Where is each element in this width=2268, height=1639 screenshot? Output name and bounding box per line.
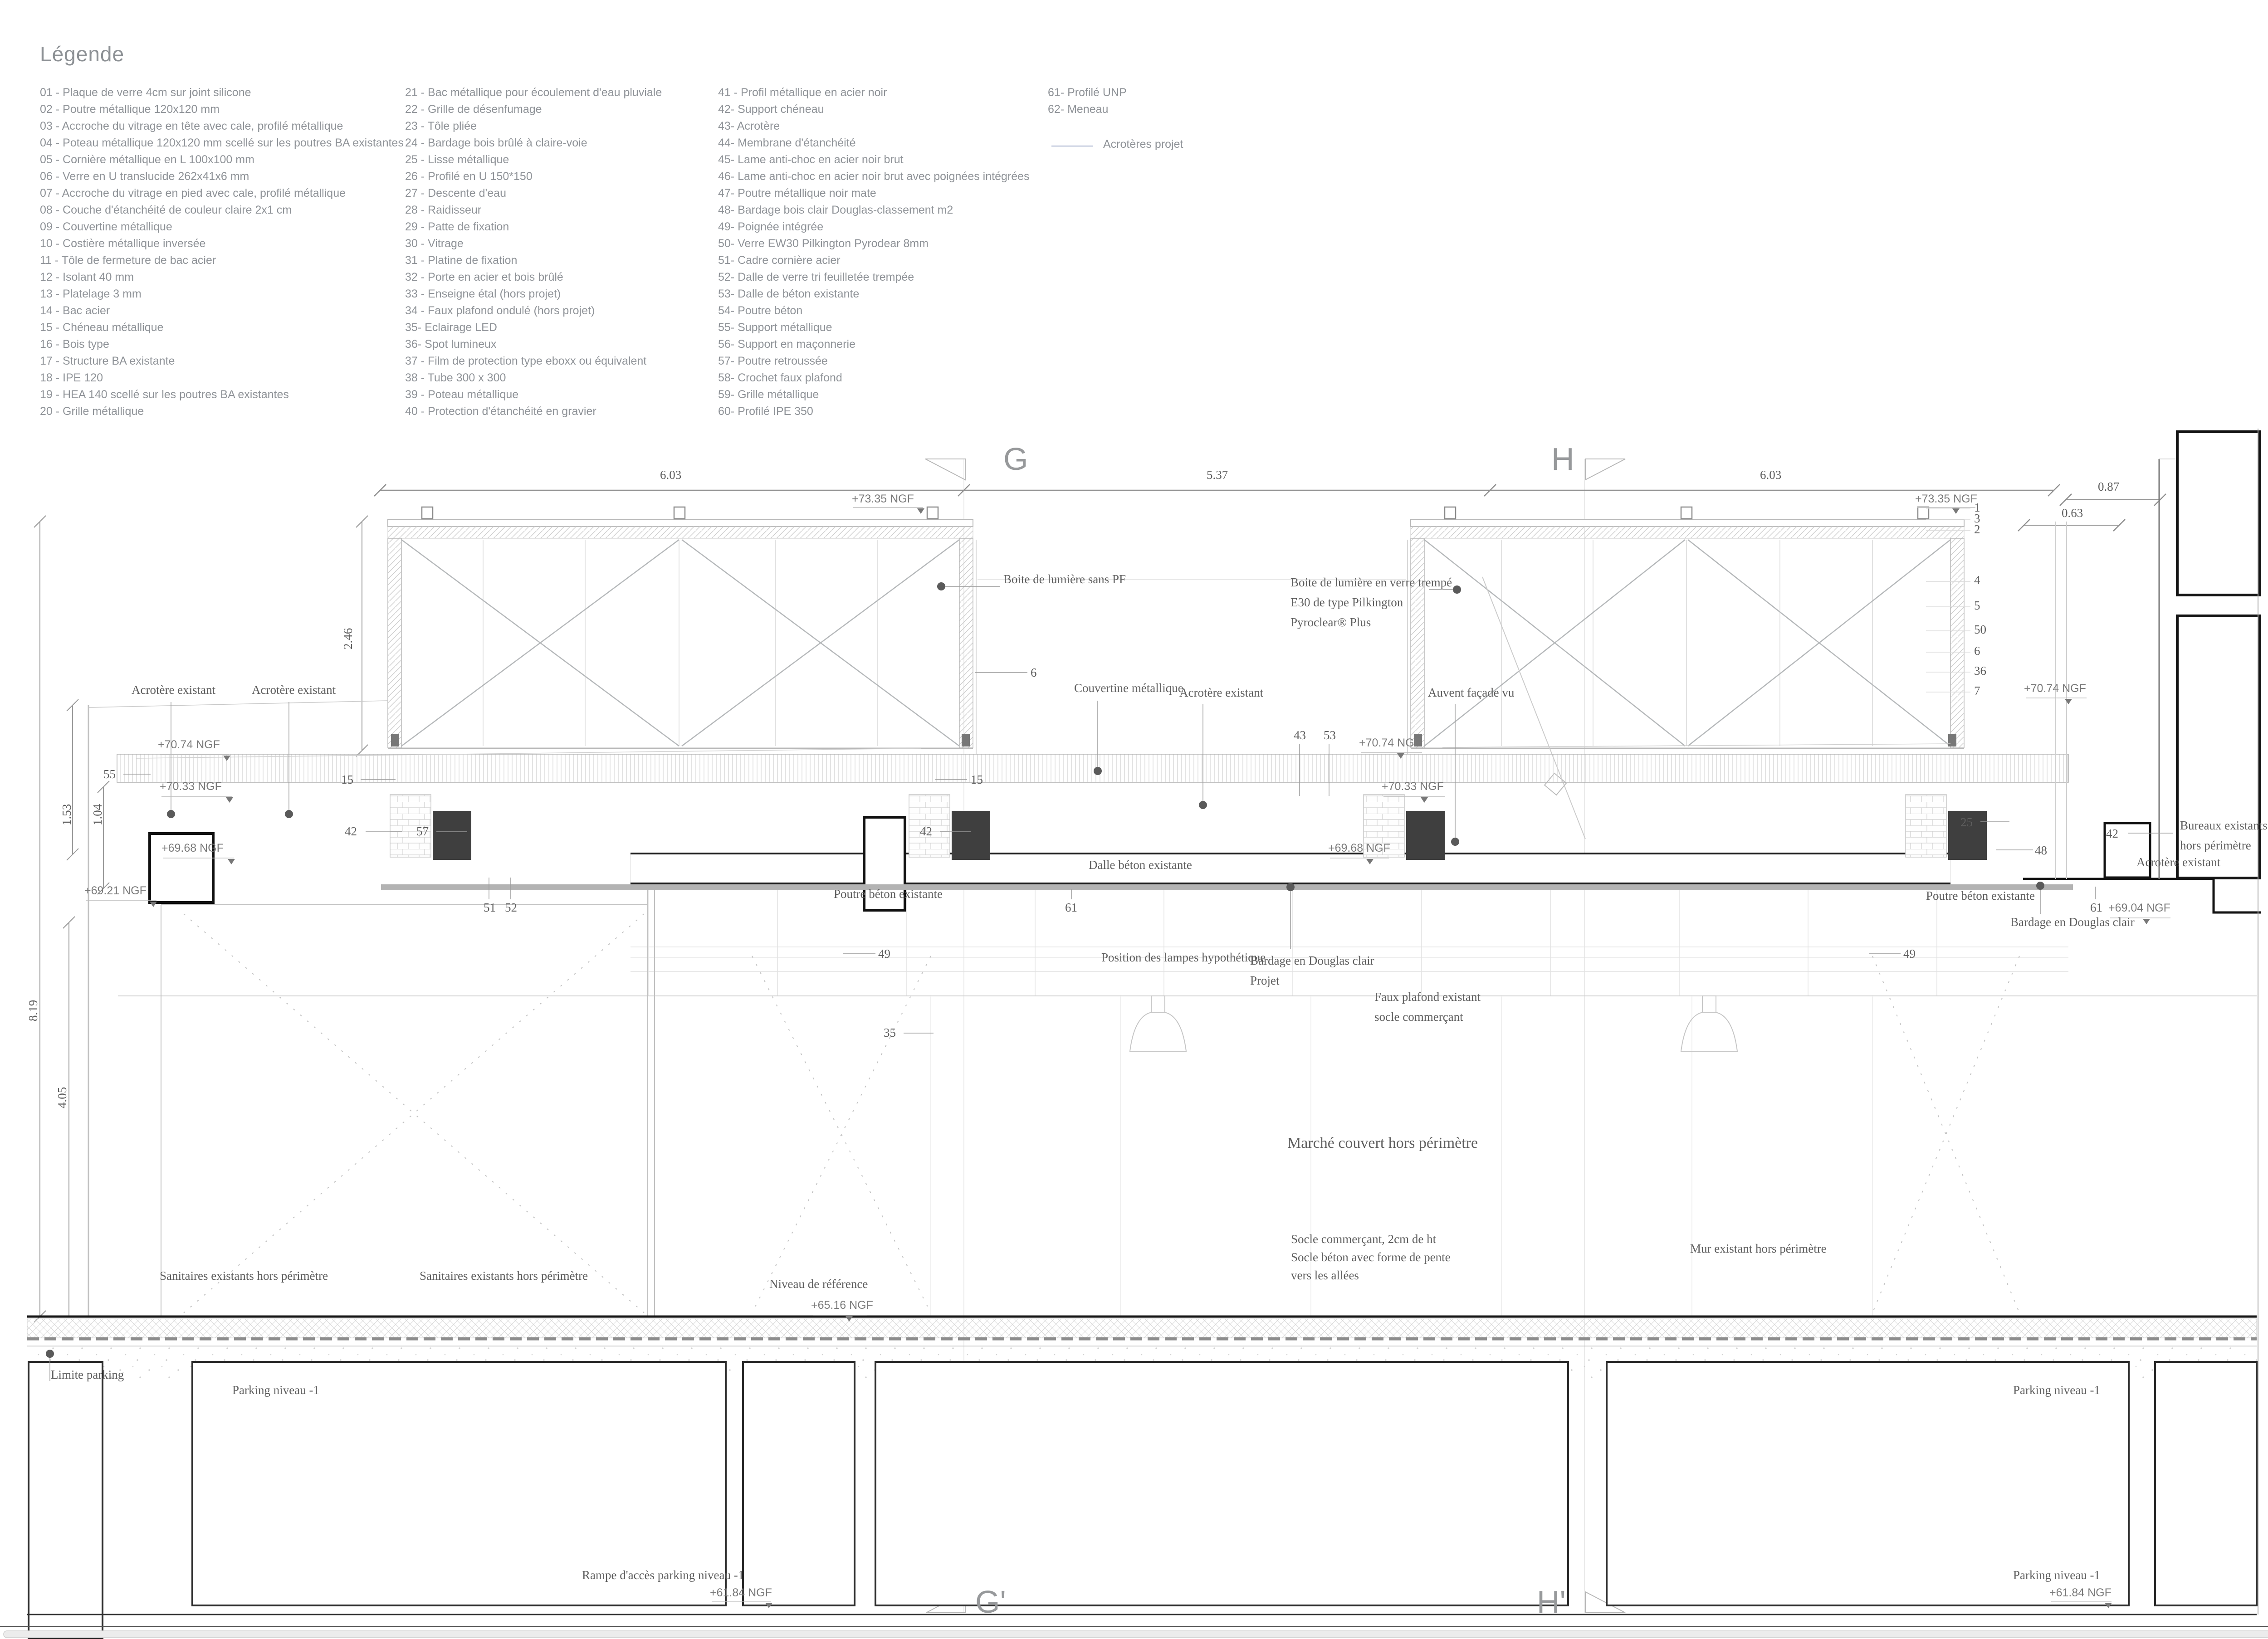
callout-42-right: 42 xyxy=(2106,827,2118,841)
label-rampe: Rampe d'accès parking niveau -1 xyxy=(582,1568,744,1582)
callout-5: 5 xyxy=(1974,599,1980,613)
ngf-73-35-left: +73.35 NGF xyxy=(852,493,914,506)
callout-61-mid: 61 xyxy=(1065,901,1077,915)
dim-1-04: 1.04 xyxy=(91,804,105,825)
label-mur-existant: Mur existant hors périmètre xyxy=(1690,1242,1827,1256)
label-boite-sans-pf: Boite de lumière sans PF xyxy=(1003,572,1126,586)
label-boite-verre: Boite de lumière en verre trempéE30 de t… xyxy=(1290,572,1452,632)
callout-7: 7 xyxy=(1974,684,1980,698)
dim-0-87: 0.87 xyxy=(2098,480,2119,494)
label-poutre-beton-left: Poutre béton existante xyxy=(834,887,943,901)
callout-15-mid: 15 xyxy=(971,773,983,787)
callout-2: 2 xyxy=(1974,522,1980,537)
label-parking-b4-top: Parking niveau -1 xyxy=(2013,1383,2100,1397)
dim-1-53: 1.53 xyxy=(60,804,74,825)
callout-35: 35 xyxy=(884,1026,896,1040)
label-acrotere-existant-left-2: Acrotère existant xyxy=(252,683,336,697)
callout-42-mid: 42 xyxy=(920,824,932,839)
label-auvent: Auvent façade vu xyxy=(1428,686,1514,700)
dim-4-05: 4.05 xyxy=(55,1087,69,1108)
callout-15-left: 15 xyxy=(341,773,353,787)
section-marker-g-prime: G' xyxy=(975,1584,1006,1620)
callout-49-left: 49 xyxy=(878,947,890,961)
label-sanitaires-1: Sanitaires existants hors périmètre xyxy=(160,1269,328,1283)
callout-42-left: 42 xyxy=(345,824,357,839)
callout-55: 55 xyxy=(103,767,116,781)
callout-36: 36 xyxy=(1974,664,1986,678)
label-dalle-beton: Dalle béton existante xyxy=(1089,858,1192,872)
ngf-61-84-right: +61.84 NGF xyxy=(2049,1586,2112,1600)
label-acrotere-existant-left-1: Acrotère existant xyxy=(132,683,215,697)
callout-6b: 6 xyxy=(1974,644,1980,658)
dim-6-03-left: 6.03 xyxy=(660,468,681,482)
dim-8-19: 8.19 xyxy=(26,1000,40,1021)
ngf-61-84-left: +61.84 NGF xyxy=(710,1586,772,1600)
label-niveau-reference: Niveau de référence xyxy=(769,1277,868,1291)
label-poutre-beton-right: Poutre béton existante xyxy=(1926,889,2035,903)
label-bureaux-existants: Bureaux existantshors périmètre xyxy=(2180,815,2268,855)
label-faux-plafond: Faux plafond existantsocle commerçant xyxy=(1374,987,1481,1027)
callout-25-right: 25 xyxy=(1960,815,1973,829)
section-marker-g: G xyxy=(1003,441,1028,477)
label-socle-commercant: Socle commerçant, 2cm de htSocle béton a… xyxy=(1291,1230,1451,1284)
callout-61-right: 61 xyxy=(2090,901,2102,915)
annotation-layer: 6.035.376.030.870.63GHG'H'+73.35 NGF+73.… xyxy=(0,0,2268,1639)
dim-2-46: 2.46 xyxy=(341,628,355,649)
callout-52: 52 xyxy=(505,901,517,915)
label-couvertine: Couvertine métallique xyxy=(1074,681,1183,695)
architectural-section-sheet: Légende 01 - Plaque de verre 4cm sur joi… xyxy=(0,0,2268,1639)
ngf-70-74-right: +70.74 NGF xyxy=(2024,682,2086,695)
label-limite-parking: Limite parking xyxy=(51,1368,124,1382)
ngf-69-21-left: +69.21 NGF xyxy=(84,884,147,898)
ngf-73-35-right: +73.35 NGF xyxy=(1915,493,1977,506)
dim-5-37: 5.37 xyxy=(1207,468,1228,482)
callout-51: 51 xyxy=(484,901,496,915)
ngf-69-04: +69.04 NGF xyxy=(2108,902,2170,915)
ngf-70-33-mid: +70.33 NGF xyxy=(1382,780,1444,793)
callout-53: 53 xyxy=(1324,728,1336,742)
label-marche-couvert: Marché couvert hors périmètre xyxy=(1287,1135,1478,1152)
label-sanitaires-2: Sanitaires existants hors périmètre xyxy=(420,1269,588,1283)
callout-57-left: 57 xyxy=(416,824,429,839)
callout-4: 4 xyxy=(1974,573,1980,587)
section-marker-h-prime: H' xyxy=(1537,1584,1566,1620)
ngf-70-74-left: +70.74 NGF xyxy=(158,738,220,751)
callout-48-right: 48 xyxy=(2035,844,2047,858)
label-parking-b1: Parking niveau -1 xyxy=(232,1383,319,1397)
ngf-65-16: +65.16 NGF xyxy=(811,1299,873,1312)
ngf-69-68-left: +69.68 NGF xyxy=(161,842,224,855)
callout-49-right: 49 xyxy=(1903,947,1916,961)
label-parking-b4-bottom: Parking niveau -1 xyxy=(2013,1568,2100,1582)
label-acrotere-existant-right: Acrotère existant xyxy=(2136,855,2220,869)
ngf-70-74-mid: +70.74 NGF xyxy=(1359,737,1421,750)
ngf-69-68-mid: +69.68 NGF xyxy=(1328,842,1390,855)
callout-6: 6 xyxy=(1031,666,1037,680)
ngf-70-33-left: +70.33 NGF xyxy=(160,780,222,793)
dim-0-63: 0.63 xyxy=(2062,506,2083,520)
callout-43: 43 xyxy=(1294,728,1306,742)
label-bardage-right: Bardage en Douglas clair xyxy=(2010,915,2135,929)
label-bardage-mid: Bardage en Douglas clairProjet xyxy=(1250,951,1374,990)
callout-50: 50 xyxy=(1974,623,1986,637)
section-marker-h: H xyxy=(1551,441,1574,477)
dim-6-03-right: 6.03 xyxy=(1760,468,1781,482)
label-position-lampes: Position des lampes hypothétique xyxy=(1101,951,1266,965)
label-acrotere-existant-mid: Acrotère existant xyxy=(1179,686,1263,700)
